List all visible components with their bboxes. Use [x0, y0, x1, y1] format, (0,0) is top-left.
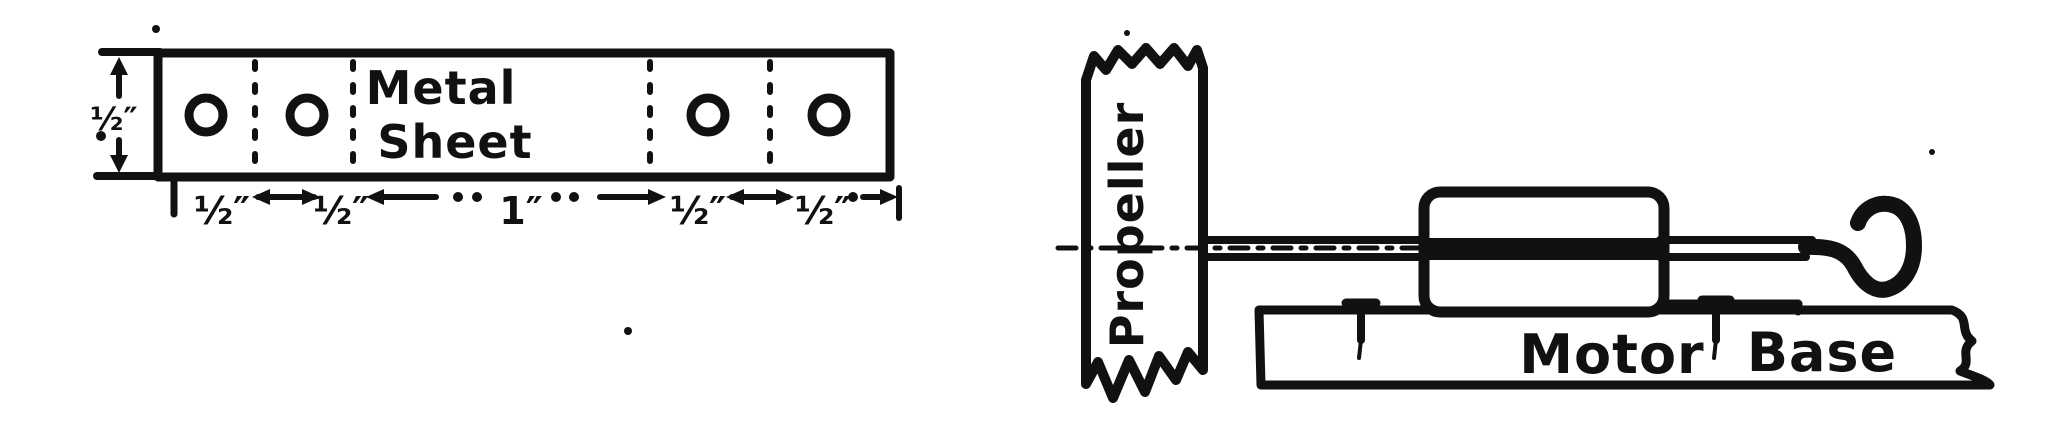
screw-tip: [1359, 340, 1361, 358]
down-arrowhead: [110, 155, 128, 173]
metal-sheet-label-line2: Sheet: [377, 115, 532, 169]
drill-hole-3: [691, 98, 725, 132]
arrowhead-right-3: [648, 189, 666, 205]
dim-label-1: ½″: [194, 189, 250, 233]
ink-speck: [1124, 30, 1130, 36]
arrowhead-left-1: [252, 189, 270, 205]
drill-hole-2: [290, 98, 324, 132]
width-dimension: ½″: [90, 57, 137, 173]
arrowhead-right-4: [776, 189, 794, 205]
ink-speck: [624, 327, 632, 335]
centerline-dot: [848, 192, 858, 202]
centerline-dot: [472, 192, 482, 202]
dim-label-5: ½″: [795, 189, 851, 233]
ink-speck: [1929, 149, 1935, 155]
metal-sheet-figure: Metal Sheet ½″ ½″ ½″ 1″: [90, 25, 899, 335]
dim-label-3: 1″: [499, 189, 542, 233]
arrowhead-right-5: [880, 189, 898, 205]
dim-label-2: ½″: [313, 189, 369, 233]
centerline-dot: [569, 192, 579, 202]
ink-speck: [96, 131, 106, 141]
width-dim-label: ½″: [90, 100, 137, 138]
ink-speck: [152, 25, 160, 33]
drill-hole-4: [812, 98, 846, 132]
drill-hole-1: [189, 98, 223, 132]
motor-base-label-word1: Motor: [1519, 323, 1704, 386]
dimension-chain: ½″ ½″ 1″ ½″ ½″: [174, 182, 899, 233]
screw-tip: [1714, 340, 1716, 358]
shaft-through-block: [1428, 238, 1660, 260]
shaft-hook: [1806, 204, 1914, 290]
metal-sheet-label-line1: Metal: [366, 61, 517, 115]
motor-base-label-word2: Base: [1747, 321, 1897, 384]
scanned-diagram-page: Metal Sheet ½″ ½″ ½″ 1″: [0, 0, 2062, 434]
propeller-label: Propeller: [1100, 102, 1154, 349]
centerline-dot: [453, 192, 463, 202]
dim-label-4: ½″: [670, 189, 726, 233]
centerline-dot: [551, 192, 561, 202]
diagram-canvas: Metal Sheet ½″ ½″ ½″ 1″: [0, 0, 2062, 434]
arrowhead-left-4: [726, 189, 744, 205]
motor-assembly-figure: Propeller Motor Base: [1058, 30, 1990, 398]
